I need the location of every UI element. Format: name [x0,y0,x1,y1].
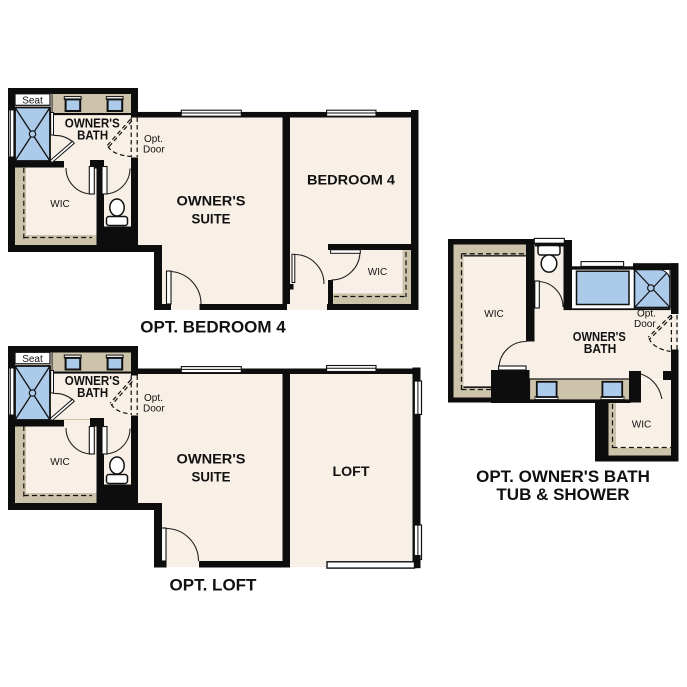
svg-text:Seat: Seat [22,354,43,365]
svg-text:BEDROOM 4: BEDROOM 4 [307,172,395,187]
svg-text:OPT. OWNER'S BATH: OPT. OWNER'S BATH [476,467,650,486]
svg-text:WIC: WIC [484,309,503,320]
svg-text:OPT. BEDROOM 4: OPT. BEDROOM 4 [140,318,286,337]
svg-text:OWNER'S: OWNER'S [177,194,246,209]
svg-text:Door: Door [143,404,165,415]
svg-text:TUB & SHOWER: TUB & SHOWER [496,485,629,504]
svg-text:Opt.: Opt. [144,393,163,404]
svg-text:Opt.: Opt. [144,134,163,145]
svg-text:Door: Door [143,145,165,156]
svg-text:SUITE: SUITE [192,469,231,484]
svg-text:WIC: WIC [632,420,651,431]
svg-text:LOFT: LOFT [333,464,371,479]
svg-text:WIC: WIC [368,267,387,278]
svg-text:Opt.: Opt. [637,309,656,320]
svg-text:OPT. LOFT: OPT. LOFT [170,576,258,595]
svg-text:SUITE: SUITE [192,211,231,226]
svg-text:WIC: WIC [50,199,69,210]
svg-text:Door: Door [634,319,656,330]
svg-text:OWNER'S: OWNER'S [177,452,246,467]
svg-text:WIC: WIC [50,457,69,468]
svg-text:BATH: BATH [584,341,617,356]
svg-text:BATH: BATH [77,127,108,142]
svg-text:BATH: BATH [77,385,108,400]
svg-text:Seat: Seat [22,95,43,106]
